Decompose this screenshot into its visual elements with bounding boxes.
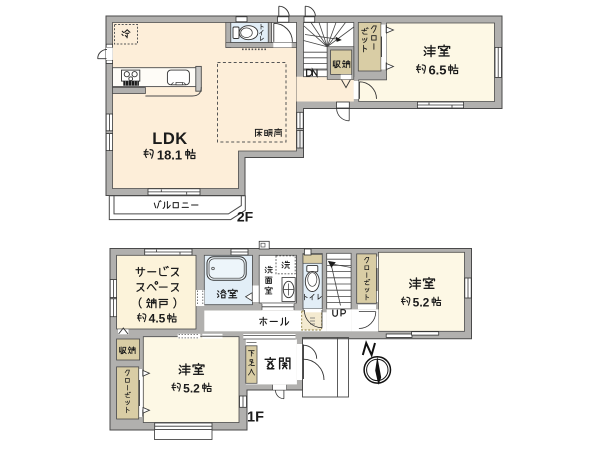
- svg-text:4.5: 4.5: [149, 311, 166, 325]
- svg-text:6.5: 6.5: [428, 63, 446, 78]
- svg-text:5.2: 5.2: [183, 382, 200, 396]
- svg-text:18.1: 18.1: [157, 147, 182, 162]
- svg-text:5.2: 5.2: [413, 296, 430, 310]
- svg-text:2F: 2F: [237, 209, 254, 225]
- svg-text:1F: 1F: [247, 410, 264, 426]
- svg-text:LDK: LDK: [152, 130, 187, 148]
